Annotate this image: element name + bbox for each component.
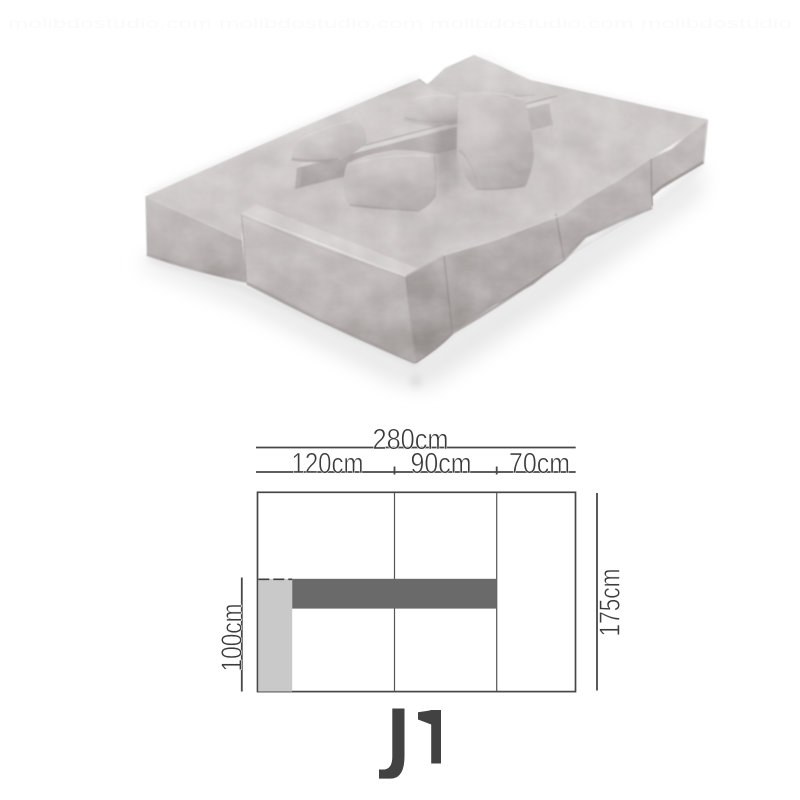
- svg-text:120cm: 120cm: [292, 448, 364, 480]
- svg-text:100cm: 100cm: [217, 604, 249, 672]
- svg-text:90cm: 90cm: [411, 448, 472, 480]
- svg-text:molibdostudio.com molibdostudi: molibdostudio.com molibdostudio.com moli…: [8, 15, 792, 31]
- svg-text:175cm: 175cm: [595, 569, 627, 637]
- svg-text:70cm: 70cm: [509, 448, 570, 480]
